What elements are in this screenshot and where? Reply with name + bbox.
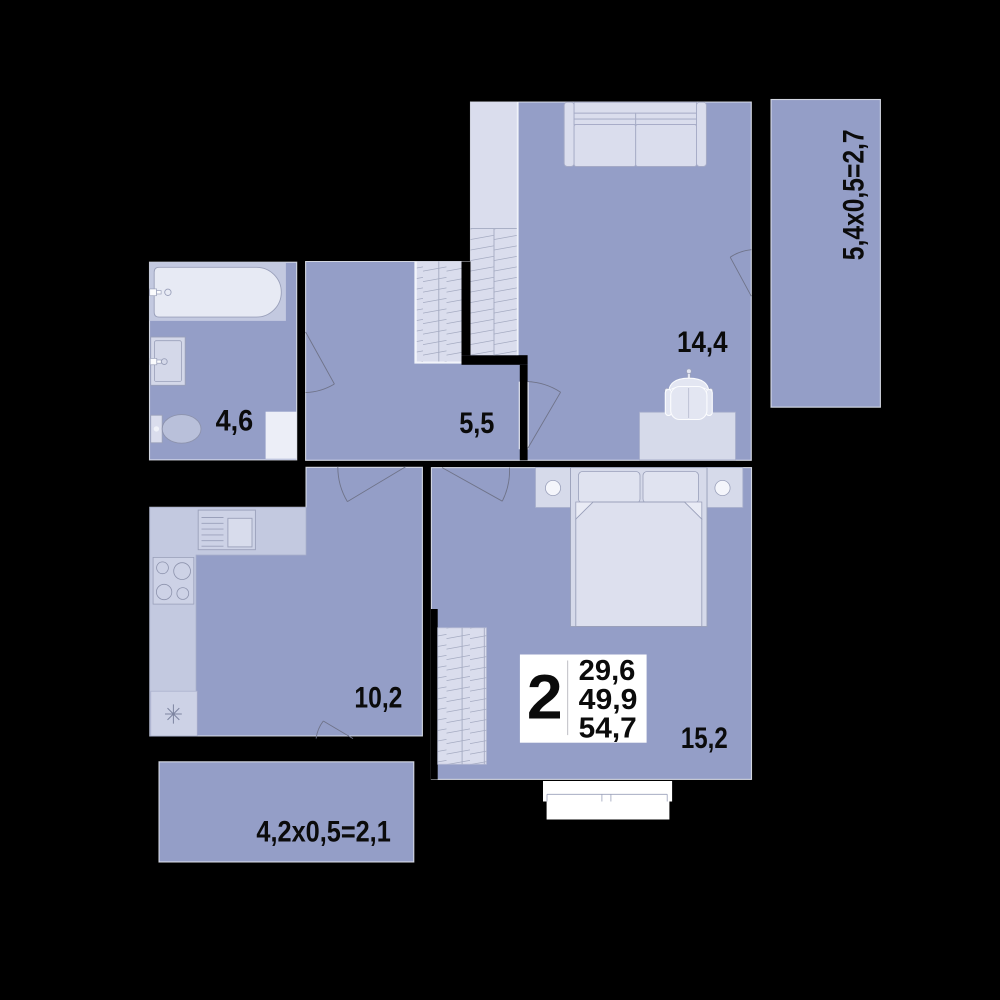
svg-text:4,6: 4,6 xyxy=(216,404,254,437)
svg-text:29,6: 29,6 xyxy=(579,655,636,687)
svg-text:54,7: 54,7 xyxy=(579,713,637,745)
svg-text:2: 2 xyxy=(527,663,563,733)
svg-text:49,9: 49,9 xyxy=(579,684,638,716)
svg-text:5,4x0,5=2,7: 5,4x0,5=2,7 xyxy=(838,129,871,260)
svg-text:10,2: 10,2 xyxy=(354,681,402,714)
svg-text:5,5: 5,5 xyxy=(459,407,494,440)
svg-text:15,2: 15,2 xyxy=(681,722,728,755)
svg-text:4,2x0,5=2,1: 4,2x0,5=2,1 xyxy=(256,816,390,849)
svg-text:14,4: 14,4 xyxy=(677,326,728,359)
